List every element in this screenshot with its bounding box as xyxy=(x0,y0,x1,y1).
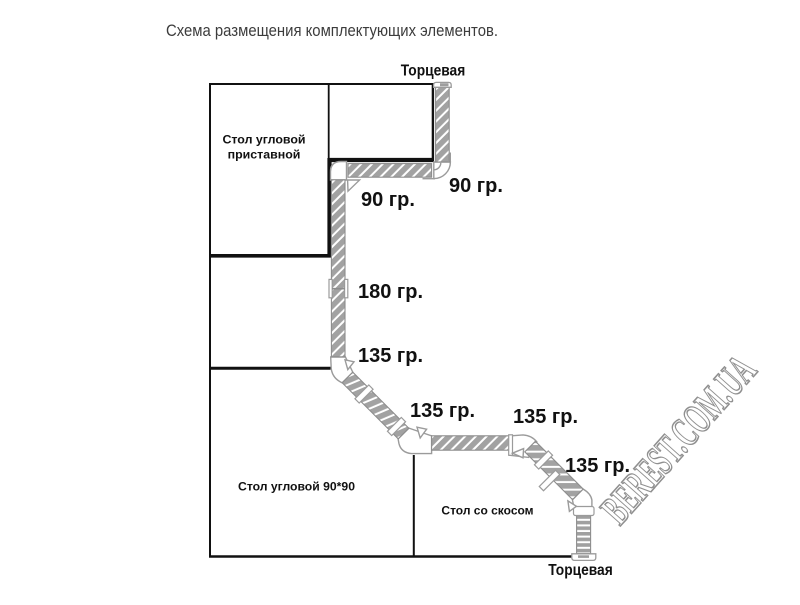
svg-text:Схема размещения комплектующих: Схема размещения комплектующих элементов… xyxy=(166,21,498,40)
svg-text:Торцевая: Торцевая xyxy=(548,562,613,579)
svg-text:Стол угловой 90*90: Стол угловой 90*90 xyxy=(238,480,355,494)
svg-text:Торцевая: Торцевая xyxy=(401,63,466,80)
svg-text:90 гр.: 90 гр. xyxy=(361,189,415,211)
svg-text:180 гр.: 180 гр. xyxy=(358,281,423,303)
svg-text:90 гр.: 90 гр. xyxy=(449,175,503,197)
svg-text:Стол угловой: Стол угловой xyxy=(222,133,305,147)
svg-text:135 гр.: 135 гр. xyxy=(513,406,578,428)
svg-text:Стол со скосом: Стол со скосом xyxy=(441,504,533,518)
svg-text:135 гр.: 135 гр. xyxy=(358,345,423,367)
svg-text:приставной: приставной xyxy=(228,148,301,162)
svg-text:135 гр.: 135 гр. xyxy=(410,400,475,422)
